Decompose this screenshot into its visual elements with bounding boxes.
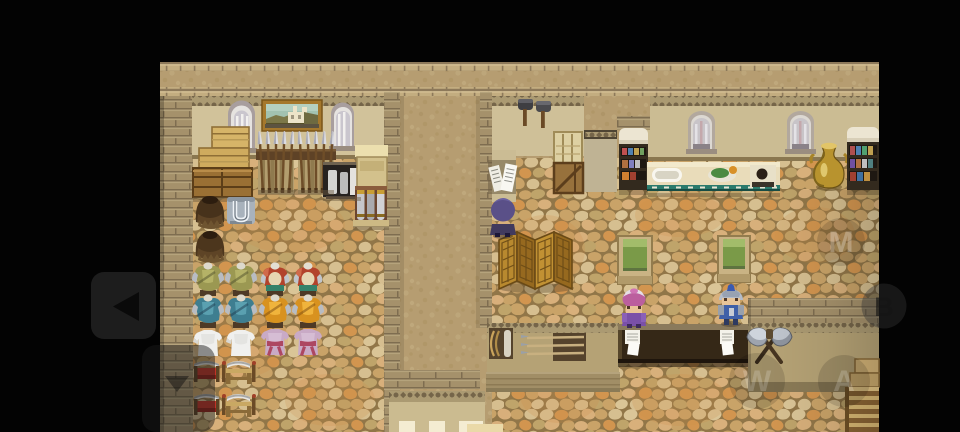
svg-text:A: A — [833, 365, 855, 398]
svg-text:M: M — [829, 226, 854, 259]
svg-text:B: B — [874, 292, 894, 322]
svg-text:W: W — [743, 365, 772, 398]
